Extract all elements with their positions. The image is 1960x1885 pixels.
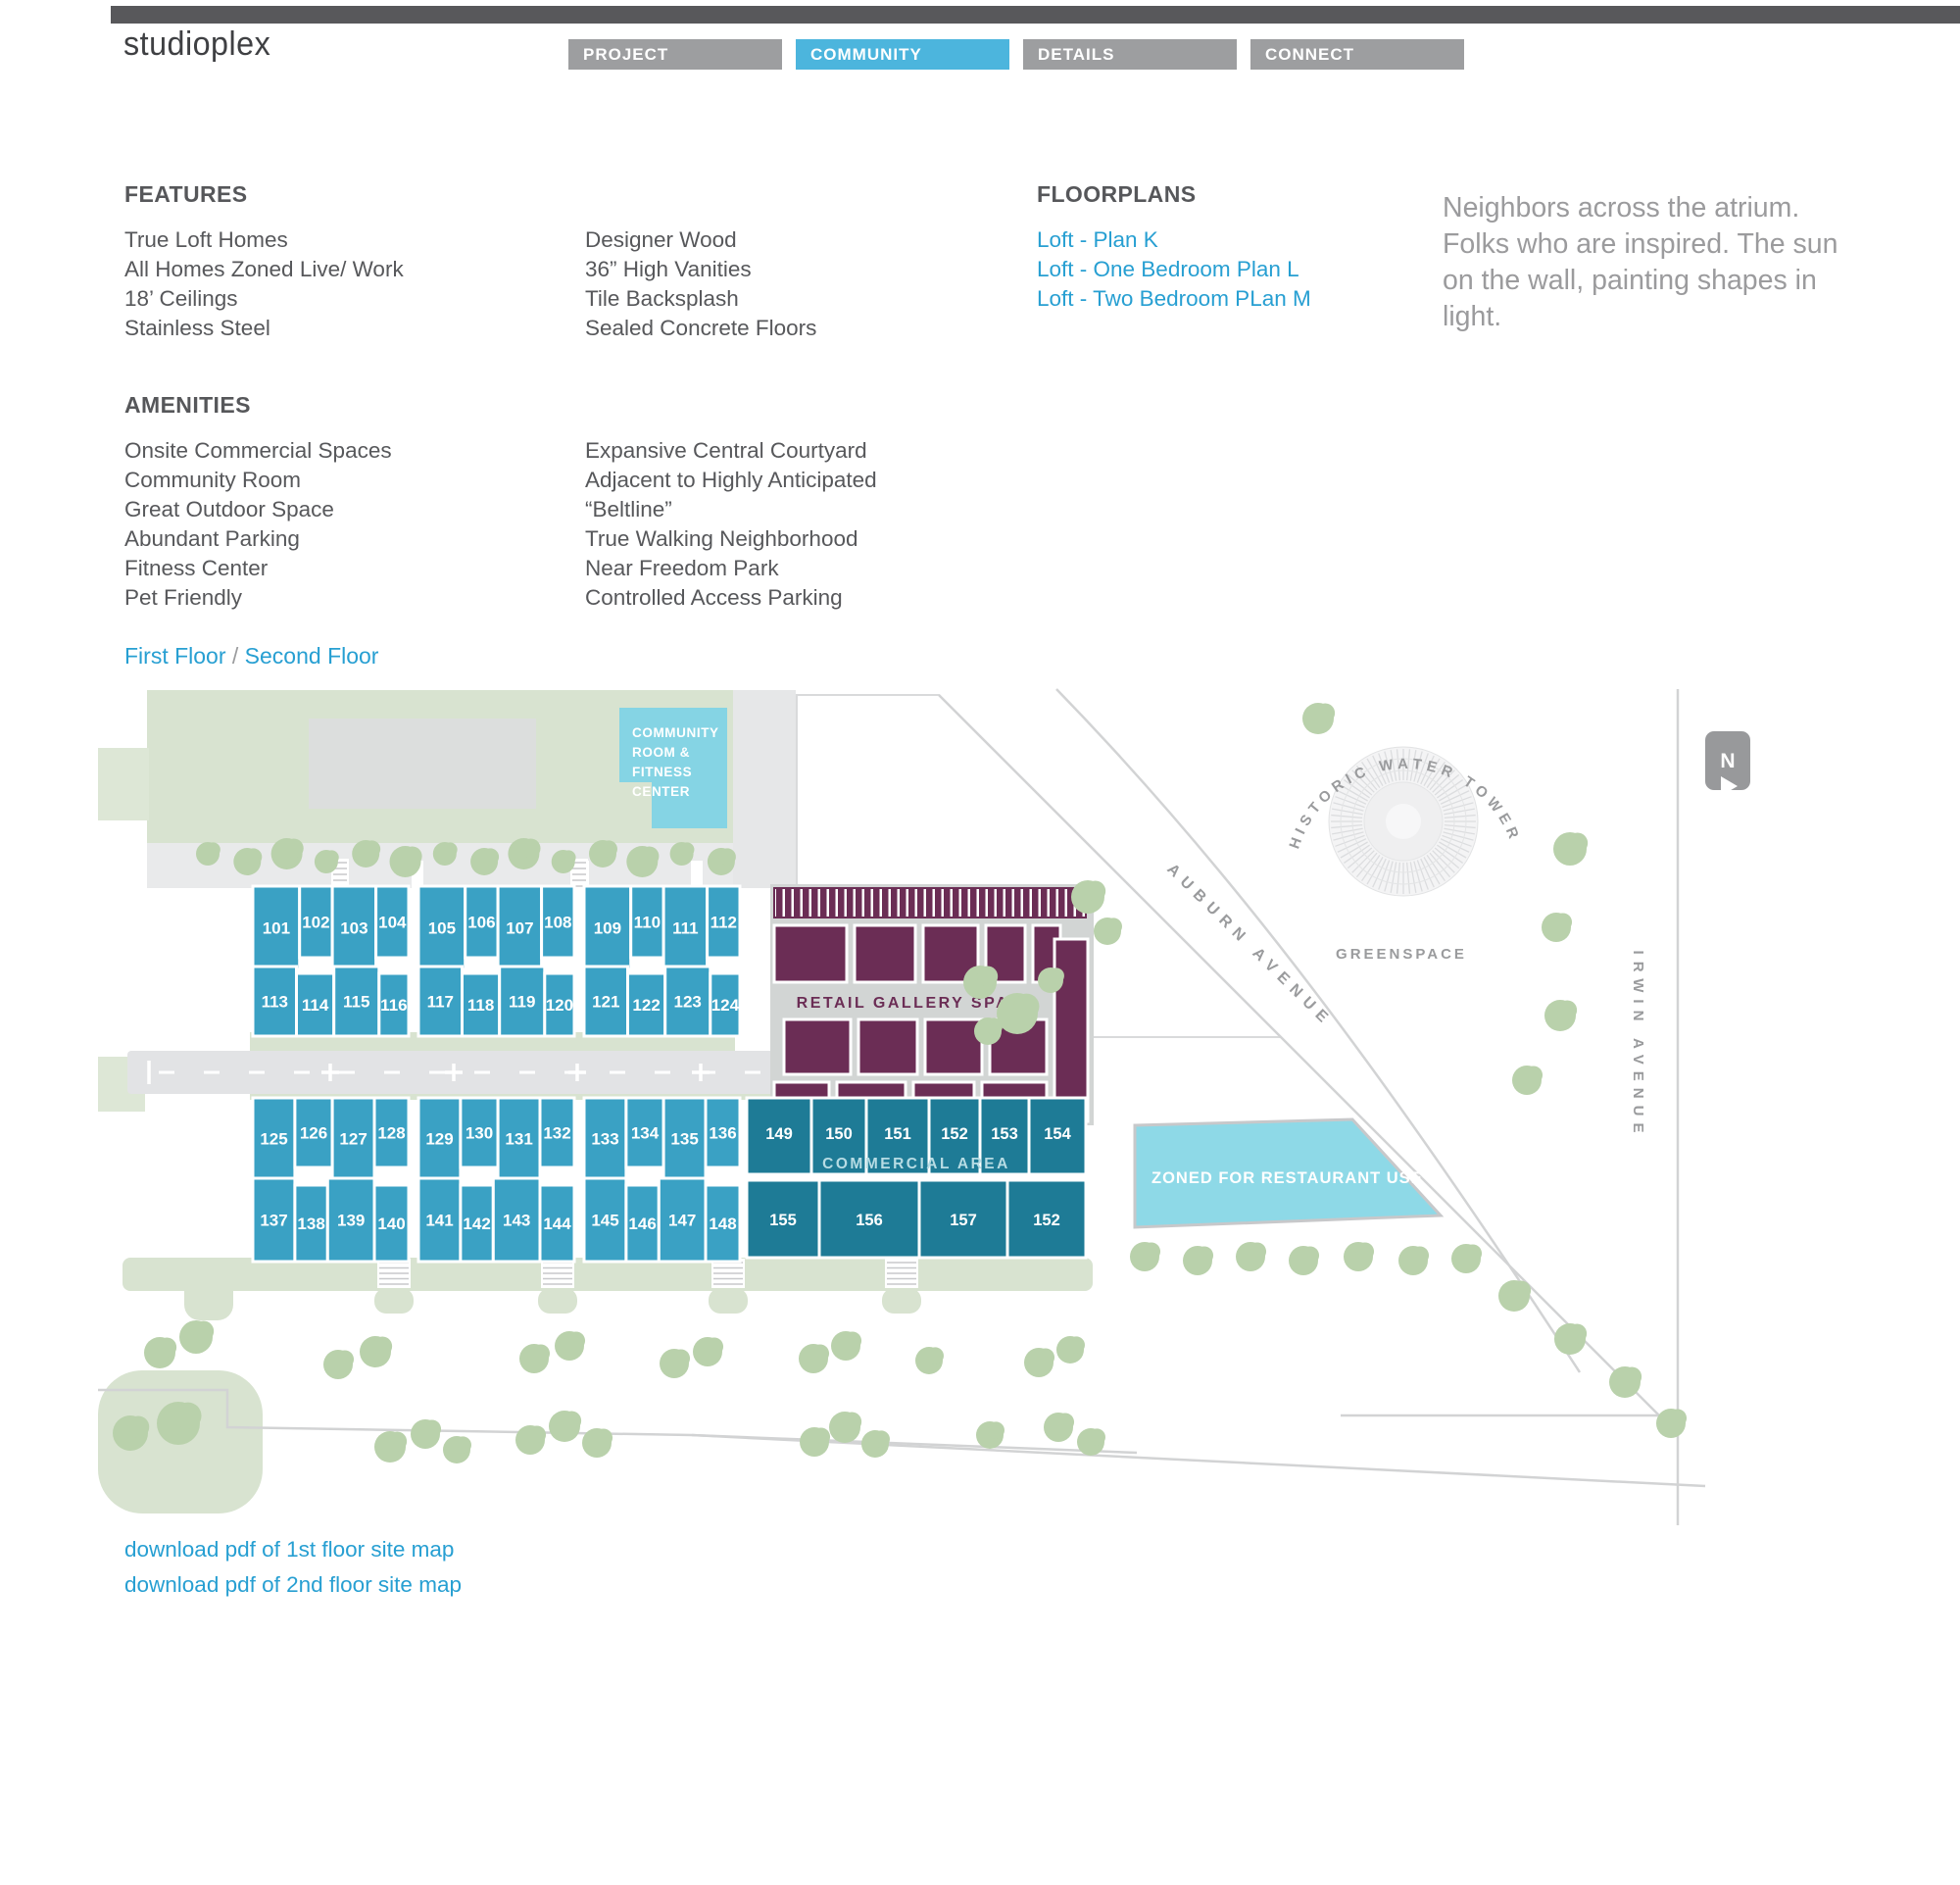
- commercial-area-label: COMMERCIAL AREA: [822, 1156, 1010, 1172]
- floor-toggle-separator: /: [232, 643, 238, 669]
- feature-item: Stainless Steel: [124, 314, 404, 343]
- commercial-units: 149150151152153154155156157152: [747, 1098, 1086, 1258]
- download-1st-floor-link[interactable]: download pdf of 1st floor site map: [124, 1537, 454, 1562]
- svg-text:101: 101: [263, 919, 290, 938]
- svg-text:118: 118: [467, 996, 494, 1015]
- floorplan-link-plan-l[interactable]: Loft - One Bedroom Plan L: [1037, 257, 1299, 281]
- svg-text:146: 146: [628, 1215, 656, 1233]
- svg-text:123: 123: [674, 993, 702, 1012]
- svg-text:119: 119: [509, 993, 535, 1012]
- svg-text:CENTER: CENTER: [632, 784, 690, 799]
- svg-text:117: 117: [427, 993, 454, 1012]
- svg-text:130: 130: [465, 1124, 493, 1143]
- restaurant-zone-label: ZONED FOR RESTAURANT USE: [1151, 1169, 1423, 1187]
- svg-text:104: 104: [378, 914, 407, 932]
- retail-gallery: RETAIL GALLERY SPACE: [770, 884, 1094, 1125]
- svg-text:116: 116: [380, 996, 407, 1015]
- compass-n-label: N: [1720, 750, 1735, 772]
- svg-text:112: 112: [710, 914, 737, 932]
- amenity-item: Abundant Parking: [124, 524, 392, 554]
- svg-text:110: 110: [634, 914, 661, 932]
- nav-tab-community[interactable]: COMMUNITY: [796, 39, 1009, 70]
- svg-text:ROOM &: ROOM &: [632, 745, 690, 760]
- site-logo: studioplex: [123, 25, 270, 64]
- svg-text:152: 152: [1033, 1212, 1060, 1229]
- svg-text:FITNESS: FITNESS: [632, 765, 692, 779]
- irwin-avenue-label: IRWIN AVENUE: [1630, 951, 1646, 1140]
- second-floor-link[interactable]: Second Floor: [245, 643, 379, 669]
- feature-item: True Loft Homes: [124, 225, 404, 255]
- amenity-item: Adjacent to Highly Anticipated: [585, 466, 877, 495]
- floorplan-link-plan-m[interactable]: Loft - Two Bedroom PLan M: [1037, 286, 1311, 311]
- svg-text:128: 128: [377, 1124, 405, 1143]
- nav-tab-details[interactable]: DETAILS: [1023, 39, 1237, 70]
- svg-text:137: 137: [260, 1212, 287, 1230]
- svg-text:132: 132: [543, 1124, 570, 1143]
- nav-tab-project[interactable]: PROJECT: [568, 39, 782, 70]
- feature-item: 36” High Vanities: [585, 255, 816, 284]
- greenspace-label: GREENSPACE: [1336, 946, 1467, 963]
- top-accent-bar: [111, 6, 1960, 24]
- feature-item: Designer Wood: [585, 225, 816, 255]
- svg-text:150: 150: [825, 1125, 853, 1143]
- svg-text:106: 106: [467, 914, 495, 932]
- svg-text:135: 135: [670, 1130, 698, 1149]
- svg-text:115: 115: [343, 993, 369, 1012]
- feature-item: Sealed Concrete Floors: [585, 314, 816, 343]
- svg-text:126: 126: [300, 1124, 327, 1143]
- svg-text:114: 114: [302, 996, 329, 1015]
- svg-text:143: 143: [503, 1212, 530, 1230]
- amenity-item: Pet Friendly: [124, 583, 392, 613]
- site-map: RETAIL GALLERY SPACE COMMUNITY ROOM & FI…: [98, 686, 1774, 1529]
- svg-text:129: 129: [425, 1130, 453, 1149]
- amenities-col1: Onsite Commercial Spaces Community Room …: [124, 436, 392, 613]
- svg-text:COMMUNITY: COMMUNITY: [632, 725, 719, 740]
- amenity-item: Great Outdoor Space: [124, 495, 392, 524]
- features-col1: True Loft Homes All Homes Zoned Live/ Wo…: [124, 225, 404, 343]
- svg-text:149: 149: [765, 1125, 793, 1143]
- nav-tab-connect[interactable]: CONNECT: [1250, 39, 1464, 70]
- svg-text:108: 108: [544, 914, 571, 932]
- features-heading: FEATURES: [124, 181, 247, 208]
- svg-text:148: 148: [709, 1215, 736, 1233]
- floorplan-links: Loft - Plan K Loft - One Bedroom Plan L …: [1037, 225, 1311, 314]
- amenity-item: Controlled Access Parking: [585, 583, 877, 613]
- first-floor-link[interactable]: First Floor: [124, 643, 226, 669]
- download-links: download pdf of 1st floor site map downl…: [124, 1532, 462, 1603]
- floorplan-link-plan-k[interactable]: Loft - Plan K: [1037, 227, 1158, 252]
- features-col2: Designer Wood 36” High Vanities Tile Bac…: [585, 225, 816, 343]
- floorplans-heading: FLOORPLANS: [1037, 181, 1196, 208]
- svg-text:144: 144: [543, 1215, 571, 1233]
- svg-text:142: 142: [463, 1215, 490, 1233]
- restaurant-zone: ZONED FOR RESTAURANT USE: [1135, 1119, 1441, 1227]
- svg-text:121: 121: [592, 993, 619, 1012]
- svg-text:140: 140: [377, 1215, 405, 1233]
- amenity-item: True Walking Neighborhood: [585, 524, 877, 554]
- svg-text:157: 157: [950, 1212, 977, 1229]
- svg-text:145: 145: [591, 1212, 618, 1230]
- svg-text:125: 125: [260, 1130, 287, 1149]
- floor-toggle: First Floor / Second Floor: [124, 643, 378, 670]
- svg-text:111: 111: [672, 919, 699, 938]
- water-tower: HISTORIC WATER TOWER GREENSPACE: [1286, 747, 1523, 963]
- svg-text:120: 120: [546, 996, 573, 1015]
- svg-text:151: 151: [884, 1125, 911, 1143]
- svg-text:155: 155: [769, 1212, 797, 1229]
- svg-text:107: 107: [506, 919, 533, 938]
- svg-text:141: 141: [425, 1212, 453, 1230]
- svg-text:154: 154: [1044, 1125, 1071, 1143]
- download-2nd-floor-link[interactable]: download pdf of 2nd floor site map: [124, 1572, 462, 1597]
- svg-text:136: 136: [709, 1124, 736, 1143]
- svg-text:105: 105: [428, 919, 456, 938]
- amenity-item: Fitness Center: [124, 554, 392, 583]
- svg-text:139: 139: [337, 1212, 365, 1230]
- feature-item: 18’ Ceilings: [124, 284, 404, 314]
- amenities-col2: Expansive Central Courtyard Adjacent to …: [585, 436, 877, 613]
- svg-text:138: 138: [297, 1215, 324, 1233]
- svg-text:134: 134: [631, 1124, 660, 1143]
- north-compass-icon: N: [1705, 731, 1750, 796]
- svg-text:133: 133: [591, 1130, 618, 1149]
- svg-text:102: 102: [302, 914, 329, 932]
- svg-text:113: 113: [262, 993, 288, 1012]
- amenities-heading: AMENITIES: [124, 392, 251, 419]
- svg-text:156: 156: [856, 1212, 883, 1229]
- svg-text:124: 124: [711, 996, 740, 1015]
- amenity-item: Expansive Central Courtyard: [585, 436, 877, 466]
- svg-text:147: 147: [668, 1212, 696, 1230]
- amenity-item: “Beltline”: [585, 495, 877, 524]
- amenity-item: Onsite Commercial Spaces: [124, 436, 392, 466]
- svg-text:109: 109: [594, 919, 621, 938]
- svg-text:127: 127: [339, 1130, 367, 1149]
- svg-text:152: 152: [941, 1125, 968, 1143]
- feature-item: All Homes Zoned Live/ Work: [124, 255, 404, 284]
- svg-text:103: 103: [340, 919, 367, 938]
- svg-text:131: 131: [505, 1130, 532, 1149]
- svg-text:122: 122: [632, 996, 660, 1015]
- svg-text:153: 153: [991, 1125, 1018, 1143]
- amenity-item: Near Freedom Park: [585, 554, 877, 583]
- marketing-quote: Neighbors across the atrium. Folks who a…: [1443, 190, 1842, 335]
- amenity-item: Community Room: [124, 466, 392, 495]
- feature-item: Tile Backsplash: [585, 284, 816, 314]
